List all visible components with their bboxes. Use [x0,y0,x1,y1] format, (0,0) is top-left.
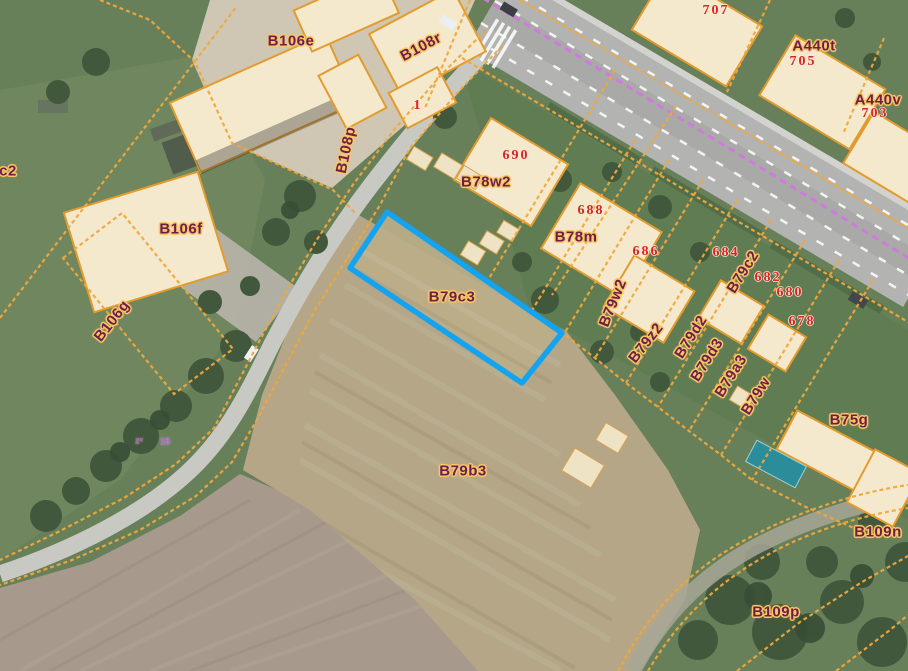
aerial-imagery [0,0,908,671]
map-canvas[interactable]: c2B106eB108rB108pB106fB106gA440tA440vB78… [0,0,908,671]
